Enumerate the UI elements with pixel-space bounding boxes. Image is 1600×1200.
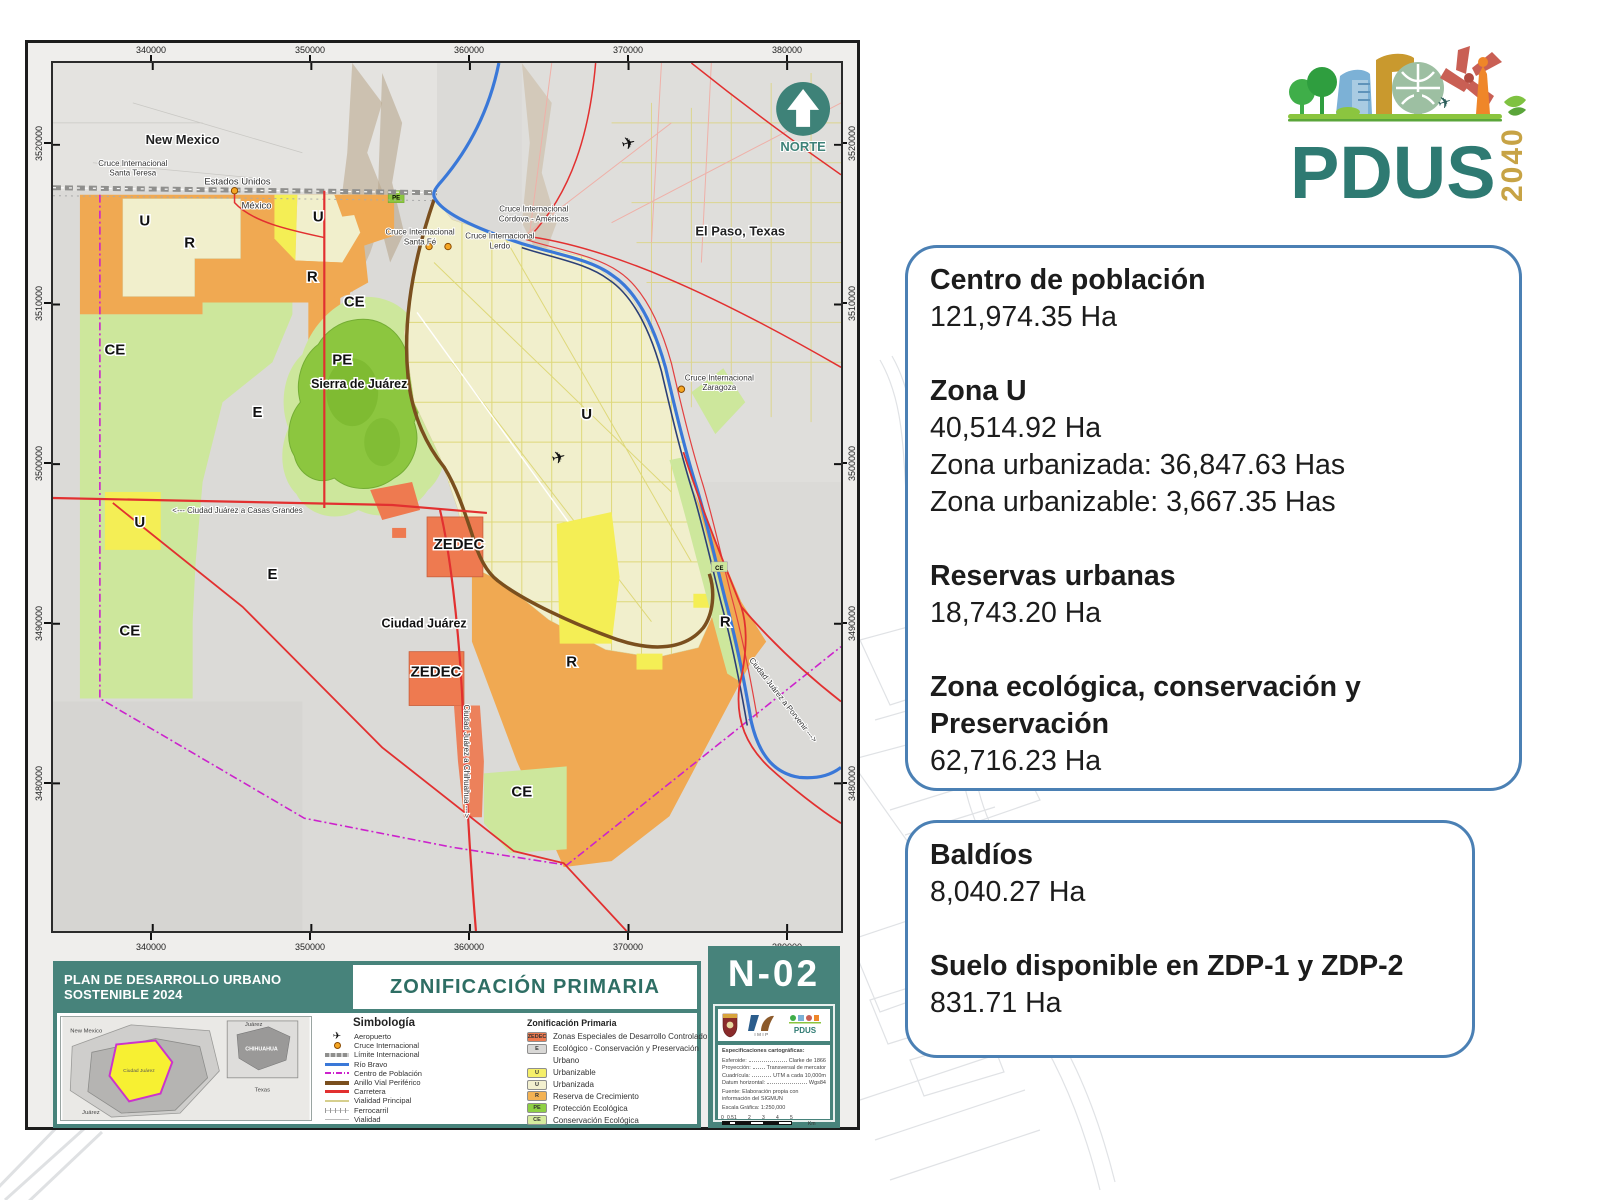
swatch-zedec: ZEDEC xyxy=(527,1032,547,1042)
zonificacion-title: Zonificación Primaria xyxy=(527,1018,695,1028)
zone-label-r: R xyxy=(566,654,577,671)
simbologia-title: Simbología xyxy=(353,1017,525,1029)
svg-text:Santa Teresa: Santa Teresa xyxy=(109,169,156,178)
zone-label-ce: CE xyxy=(119,623,140,640)
label-sierra: Sierra de Juárez xyxy=(311,377,407,391)
y-tick-label: 3510000 xyxy=(847,273,860,333)
sheet-code-column: N-02 IMIP PDUS xyxy=(708,946,840,1128)
inset-label-juarez-state: Juárez xyxy=(245,1022,263,1028)
cartographic-panel: IMIP PDUS Especificaciones cartográficas… xyxy=(713,1004,835,1122)
label-new-mexico: New Mexico xyxy=(146,132,220,147)
inset-label-texas: Texas xyxy=(255,1088,270,1094)
svg-text:Cruce Internacional: Cruce Internacional xyxy=(499,205,568,214)
tick xyxy=(44,782,51,784)
stat-value: 831.71 Ha xyxy=(930,985,1472,1022)
plan-banner: PLAN DE DESARROLLO URBANO SOSTENIBLE 202… xyxy=(56,967,351,1007)
scale-bar: 0 0.5 1 2 3 4 5 Km xyxy=(722,1115,826,1128)
municipal-crest-logo xyxy=(722,1012,738,1038)
svg-text:Cruce Internacional: Cruce Internacional xyxy=(386,228,455,237)
zone-label-r: R xyxy=(184,235,195,252)
y-tick-label: 3500000 xyxy=(847,433,860,493)
zone-label-r: R xyxy=(307,268,318,285)
zone-label-u: U xyxy=(139,213,150,230)
x-tick-label: 350000 xyxy=(285,45,335,55)
x-tick-label: 360000 xyxy=(444,942,494,952)
stat-value: 8,040.27 Ha xyxy=(930,874,1472,911)
stats-panel-1: Centro de población 121,974.35 Ha Zona U… xyxy=(905,245,1522,791)
tick xyxy=(786,933,788,940)
norte-label: NORTE xyxy=(780,139,826,154)
zone-label-pe: PE xyxy=(332,351,352,368)
cruce-icon xyxy=(334,1042,341,1049)
svg-text:Cruce Internacional: Cruce Internacional xyxy=(98,159,167,168)
stat-value: 121,974.35 Ha xyxy=(930,299,1519,336)
x-tick-label: 370000 xyxy=(603,45,653,55)
zone-label-zedec: ZEDEC xyxy=(434,536,485,553)
logo-wordmark: PDUS xyxy=(1290,131,1496,214)
y-tick-label: 3480000 xyxy=(847,753,860,813)
y-tick-label: 3520000 xyxy=(847,113,860,173)
zone-label-ce: CE xyxy=(344,293,365,310)
stat-heading: Suelo disponible en ZDP-1 y ZDP-2 xyxy=(930,948,1472,985)
sheet-code: N-02 xyxy=(708,946,840,1002)
tick xyxy=(44,462,51,464)
svg-text:CE: CE xyxy=(715,566,723,572)
swatch-conservacion: CE xyxy=(527,1115,547,1125)
zone-label-u: U xyxy=(581,406,592,423)
tick xyxy=(627,933,629,940)
road-label-chihuahua: Ciudad Juárez a Chihuahua ---> xyxy=(462,705,471,819)
logo-airplane-icon: ✈ xyxy=(1436,93,1454,113)
stat-heading: Centro de población xyxy=(930,262,1519,299)
zone-urbanizable-se xyxy=(557,512,620,644)
stat-heading: Baldíos xyxy=(930,837,1472,874)
logo-year: 2040 xyxy=(1496,127,1529,202)
x-tick-label: 340000 xyxy=(126,942,176,952)
map-title: ZONIFICACIÓN PRIMARIA xyxy=(353,965,697,1009)
zoning-map: CE ✈ ✈ New Mexico El Paso, Texas Estados… xyxy=(53,63,841,931)
stat-heading: Reservas urbanas xyxy=(930,558,1519,595)
logo-skyline: ✈ xyxy=(1288,46,1526,122)
tick xyxy=(468,933,470,940)
institution-logos: IMIP PDUS xyxy=(718,1009,830,1041)
limite-icon xyxy=(325,1053,349,1057)
pdus-mini-logo: PDUS xyxy=(786,1013,826,1037)
stat-heading: Zona U xyxy=(930,373,1519,410)
x-tick-label: 360000 xyxy=(444,45,494,55)
x-tick-label: 380000 xyxy=(762,45,812,55)
svg-text:Lerdo: Lerdo xyxy=(490,242,511,251)
zone-label-ce: CE xyxy=(511,783,532,800)
svg-text:PDUS: PDUS xyxy=(794,1026,817,1035)
north-arrow: NORTE xyxy=(776,82,830,154)
centro-icon xyxy=(325,1072,349,1074)
zone-label-r: R xyxy=(720,614,731,631)
cartographic-specs: Especificaciones cartográficas: Esferoid… xyxy=(718,1045,830,1119)
legend: PLAN DE DESARROLLO URBANO SOSTENIBLE 202… xyxy=(53,961,701,1128)
vialidad-principal-icon xyxy=(325,1100,349,1103)
zone-label-pe-small: PE xyxy=(392,196,400,202)
swatch-e: E xyxy=(527,1044,547,1054)
label-mexico: México xyxy=(241,201,271,212)
map-sheet: 340000 350000 360000 370000 380000 34000… xyxy=(25,40,860,1130)
specs-title: Especificaciones cartográficas: xyxy=(722,1048,826,1055)
carretera-icon xyxy=(325,1090,349,1093)
tick xyxy=(150,933,152,940)
tick xyxy=(309,933,311,940)
x-tick-label: 350000 xyxy=(285,942,335,952)
swatch-proteccion: PE xyxy=(527,1103,547,1113)
label-ciudad-juarez: Ciudad Juárez xyxy=(382,617,467,631)
tick xyxy=(44,142,51,144)
svg-text:Cruce Internacional: Cruce Internacional xyxy=(685,373,754,382)
ferrocarril-icon xyxy=(325,1108,349,1113)
label-estados-unidos: Estados Unidos xyxy=(204,177,271,188)
stat-value: 40,514.92 Ha xyxy=(930,410,1519,447)
svg-text:Zaragoza: Zaragoza xyxy=(702,383,736,392)
swatch-urbanizada: U xyxy=(527,1080,547,1090)
ce-tag: CE xyxy=(711,562,727,572)
svg-text:IMIP: IMIP xyxy=(754,1032,769,1037)
corner-watermark xyxy=(0,1120,140,1200)
zone-label-u: U xyxy=(313,209,324,226)
zone-label-zedec: ZEDEC xyxy=(411,664,462,681)
location-inset-map: Juárez CHIHUAHUA New Mexico Texas Juárez… xyxy=(60,1016,312,1121)
stats-panel-2: Baldíos 8,040.27 Ha Suelo disponible en … xyxy=(905,820,1475,1058)
stat-value: 18,743.20 Ha xyxy=(930,595,1519,632)
zone-label-ce: CE xyxy=(104,341,125,358)
inset-label-new-mexico: New Mexico xyxy=(70,1029,103,1035)
anillo-icon xyxy=(325,1081,349,1085)
simbologia: Simbología ✈Aeropuerto Cruce Internacion… xyxy=(325,1016,525,1124)
svg-text:Santa Fé: Santa Fé xyxy=(404,238,437,247)
vialidad-icon xyxy=(325,1119,349,1121)
specs-source: Fuente: Elaboración propia con informaci… xyxy=(722,1089,826,1102)
inset-label-chihuahua: CHIHUAHUA xyxy=(245,1046,278,1052)
svg-text:Córdova - Américas: Córdova - Américas xyxy=(499,215,569,224)
x-tick-label: 370000 xyxy=(603,942,653,952)
specs-scale: Escala Gráfica: 1:250,000 xyxy=(722,1105,826,1112)
stat-detail: Zona urbanizable: 3,667.35 Has xyxy=(930,484,1519,521)
x-tick-label: 340000 xyxy=(126,45,176,55)
zone-label-u: U xyxy=(134,514,145,531)
urbano-subheading: Urbano xyxy=(553,1056,579,1065)
rio-icon xyxy=(325,1063,349,1066)
swatch-reserva: R xyxy=(527,1091,547,1101)
y-tick-label: 3490000 xyxy=(847,593,860,653)
tick xyxy=(44,302,51,304)
inset-label-juarez: Juárez xyxy=(82,1110,100,1116)
zonificacion-legend: Zonificación Primaria ZEDECZonas Especia… xyxy=(527,1016,695,1126)
map-frame: CE ✈ ✈ New Mexico El Paso, Texas Estados… xyxy=(51,61,843,933)
svg-text:Cruce Internacional: Cruce Internacional xyxy=(465,232,534,241)
swatch-urbanizable: U xyxy=(527,1068,547,1078)
inset-label-ciudad-juarez: Ciudad Juárez xyxy=(123,1068,155,1074)
road-label-casas-grandes: <--- Ciudad Juárez a Casas Grandes xyxy=(172,506,302,515)
legend-panel: Juárez CHIHUAHUA New Mexico Texas Juárez… xyxy=(57,1013,697,1124)
airport-icon: ✈ xyxy=(325,1033,349,1041)
zone-label-e: E xyxy=(252,404,262,421)
tick xyxy=(44,622,51,624)
label-el-paso: El Paso, Texas xyxy=(695,224,785,239)
stat-detail: Zona urbanizada: 36,847.63 Has xyxy=(930,447,1519,484)
imip-logo: IMIP xyxy=(747,1013,777,1037)
stat-value: 62,716.23 Ha xyxy=(930,743,1519,780)
pdus-2040-logo: ✈ PDUS 2040 xyxy=(1280,40,1540,220)
zone-label-e: E xyxy=(267,566,277,583)
stat-heading: Zona ecológica, conservación y Preservac… xyxy=(930,669,1470,743)
